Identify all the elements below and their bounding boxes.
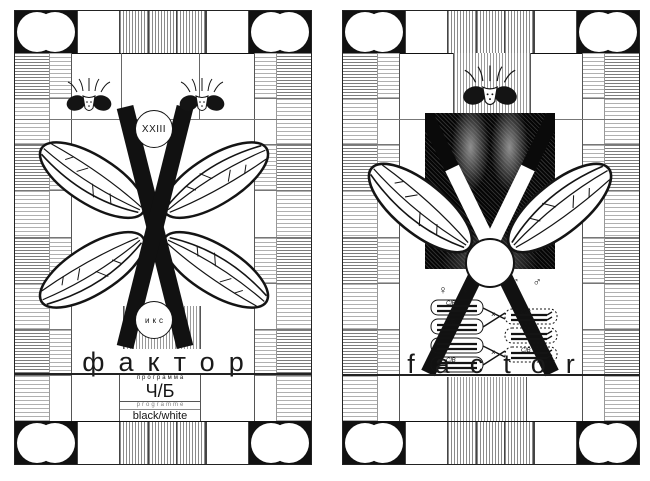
female-symbols: ♀ ♀ <box>429 283 479 297</box>
stripe-block-icon <box>447 377 527 423</box>
fly-head-icon <box>172 76 232 120</box>
testcard-band-bottom <box>343 421 639 464</box>
iks-label: икс <box>142 316 166 325</box>
title-rule <box>343 374 639 376</box>
band-gap <box>405 422 448 464</box>
corner-circles-icon <box>15 422 77 464</box>
corner-circles-icon <box>577 422 639 464</box>
band-gap <box>77 422 120 464</box>
stripe-block-icon <box>120 422 206 464</box>
roman-numeral-badge: XXIII <box>135 110 173 148</box>
iks-badge: икс <box>135 301 173 339</box>
testcard-band-bottom <box>15 421 311 464</box>
program-label-en: programme <box>120 402 200 410</box>
program-block: программа Ч/Б programme black/white <box>119 375 201 423</box>
clb-label: ClB <box>521 310 531 316</box>
clb-label: ClB <box>446 301 456 307</box>
corner-circles-icon <box>343 422 405 464</box>
roman-numeral-label: XXIII <box>142 124 166 135</box>
poster-right: ♀ ♀ ♂ ♂ ClB ClB <box>342 10 640 465</box>
band-gap <box>534 422 577 464</box>
band-gap <box>206 422 249 464</box>
clb-label: ClB <box>446 320 456 326</box>
stripe-block-icon <box>448 422 534 464</box>
corner-circles-icon <box>249 422 311 464</box>
cross-mark: × <box>491 310 496 319</box>
poster-left: XXIII икс фактор программа Ч/Б programme… <box>14 10 312 465</box>
male-symbols: ♂ ♂ <box>501 275 551 289</box>
artwork-canvas: XXIII икс фактор программа Ч/Б programme… <box>0 0 650 481</box>
fly-head-icon <box>59 76 119 120</box>
program-value: Ч/Б <box>120 382 200 402</box>
